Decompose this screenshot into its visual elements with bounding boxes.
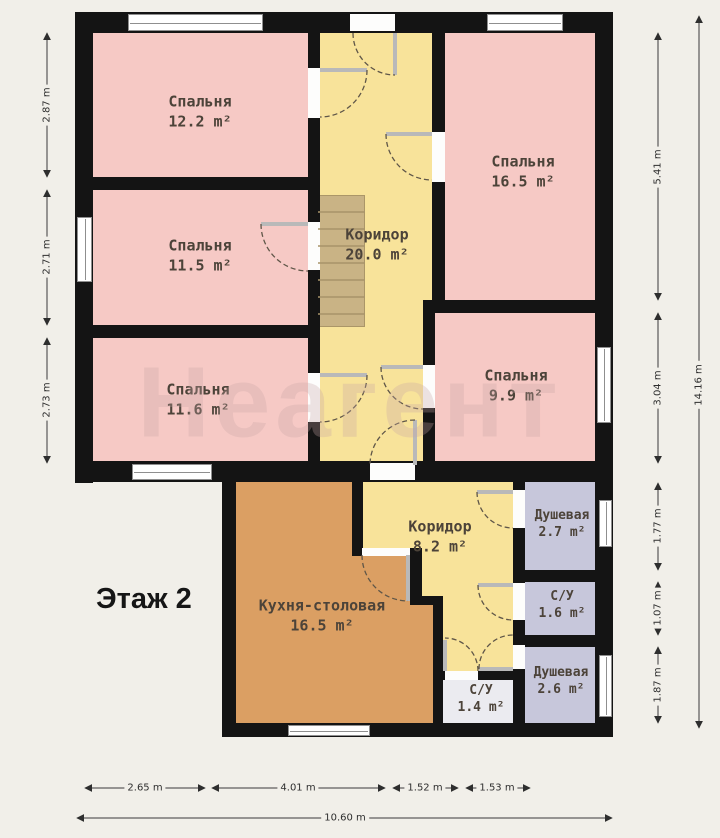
window-right-shower2 <box>599 655 612 717</box>
door-opening-shower1 <box>513 490 525 528</box>
room-area: 9.9 m² <box>484 386 547 406</box>
dim-bottom-3: 1.52 m <box>404 783 445 794</box>
room-area: 16.5 m² <box>491 172 554 192</box>
wall-lower-left <box>222 461 236 737</box>
room-name: Душевая <box>534 665 589 682</box>
window-top-bedroom4 <box>487 14 563 31</box>
room-name: Спальня <box>484 367 547 387</box>
dim-bottom-total: 10.60 m <box>321 813 369 824</box>
room-name: С/У <box>539 589 586 606</box>
room-area: 1.4 m² <box>458 700 505 717</box>
dim-left-3: 2.73 m <box>42 379 53 420</box>
wall-outer-bottom <box>222 723 613 737</box>
label-wc1: С/У 1.6 m² <box>539 589 586 623</box>
door-opening-bedroom4 <box>432 132 445 182</box>
label-bedroom1: Спальня 12.2 m² <box>168 93 231 132</box>
wall-kitchen-step <box>410 596 443 605</box>
room-area: 2.6 m² <box>534 682 589 699</box>
label-bedroom5: Спальня 9.9 m² <box>484 367 547 406</box>
window-right-bedroom5 <box>597 347 611 423</box>
dim-right-2: 3.04 m <box>653 367 664 408</box>
dim-bottom-4: 1.53 m <box>476 783 517 794</box>
label-bedroom3: Спальня 11.6 m² <box>166 381 229 420</box>
dim-right-4: 1.07 m <box>653 587 664 628</box>
room-area: 20.0 m² <box>345 245 408 265</box>
window-bottom-bedroom3 <box>132 464 212 480</box>
dim-bottom-2: 4.01 m <box>277 783 318 794</box>
door-opening-wc2 <box>445 671 478 680</box>
room-name: Коридор <box>408 518 471 538</box>
label-wc2: С/У 1.4 m² <box>458 683 505 717</box>
room-area: 8.2 m² <box>408 537 471 557</box>
door-opening-wc1 <box>513 583 525 620</box>
label-hall-upper: Коридор 20.0 m² <box>345 226 408 265</box>
wall-kitchen-vert-top <box>352 482 363 555</box>
door-opening-bedroom3 <box>308 373 320 422</box>
wall-kitchen-vert-low <box>433 605 443 723</box>
dim-right-5: 1.87 m <box>653 664 664 705</box>
wall-bedroom1-bedroom2 <box>93 177 308 190</box>
door-opening-bedroom5 <box>423 365 435 408</box>
label-shower2: Душевая 2.6 m² <box>534 665 589 699</box>
room-area: 11.5 m² <box>168 256 231 276</box>
window-left-bedroom2 <box>77 217 92 282</box>
dim-right-1: 5.41 m <box>653 146 664 187</box>
room-name: Кухня-столовая <box>259 597 385 617</box>
room-name: Спальня <box>491 153 554 173</box>
label-shower1: Душевая 2.7 m² <box>535 508 590 542</box>
door-opening-balcony <box>350 14 395 31</box>
wall-bedroom2-bedroom3 <box>93 325 308 338</box>
window-top-bedroom1 <box>128 14 263 31</box>
room-area: 1.6 m² <box>539 606 586 623</box>
room-kitchen-fill-b <box>352 555 410 723</box>
door-opening-hall-stairs <box>370 463 415 480</box>
label-hall-lower: Коридор 8.2 m² <box>408 518 471 557</box>
dim-right-3: 1.77 m <box>653 505 664 546</box>
label-bedroom4: Спальня 16.5 m² <box>491 153 554 192</box>
door-opening-shower2 <box>513 645 525 669</box>
room-area: 12.2 m² <box>168 112 231 132</box>
door-opening-bedroom1 <box>308 68 320 118</box>
label-kitchen: Кухня-столовая 16.5 m² <box>259 597 385 636</box>
label-bedroom2: Спальня 11.5 m² <box>168 237 231 276</box>
room-area: 2.7 m² <box>535 525 590 542</box>
room-area: 16.5 m² <box>259 616 385 636</box>
door-opening-bedroom2 <box>308 222 320 270</box>
window-right-shower1 <box>599 500 612 547</box>
room-name: Душевая <box>535 508 590 525</box>
room-name: С/У <box>458 683 505 700</box>
floor-plan: Спальня 12.2 m² Спальня 11.5 m² Спальня … <box>0 0 720 838</box>
wall-shower1-wc1 <box>513 570 598 582</box>
floor-title: Этаж 2 <box>96 583 192 616</box>
window-bottom-kitchen <box>288 725 370 736</box>
wall-wc1-shower2 <box>513 635 598 647</box>
dim-bottom-1: 2.65 m <box>124 783 165 794</box>
door-opening-kitchen <box>362 548 410 556</box>
dim-left-1: 2.87 m <box>42 84 53 125</box>
room-kitchen-fill-c <box>410 605 433 723</box>
dim-right-total: 14.16 m <box>694 361 705 409</box>
room-name: Спальня <box>168 237 231 257</box>
wall-bedroom4-bedroom5 <box>423 300 613 313</box>
dim-left-2: 2.71 m <box>42 236 53 277</box>
room-area: 11.6 m² <box>166 400 229 420</box>
room-name: Спальня <box>168 93 231 113</box>
room-name: Коридор <box>345 226 408 246</box>
room-name: Спальня <box>166 381 229 401</box>
